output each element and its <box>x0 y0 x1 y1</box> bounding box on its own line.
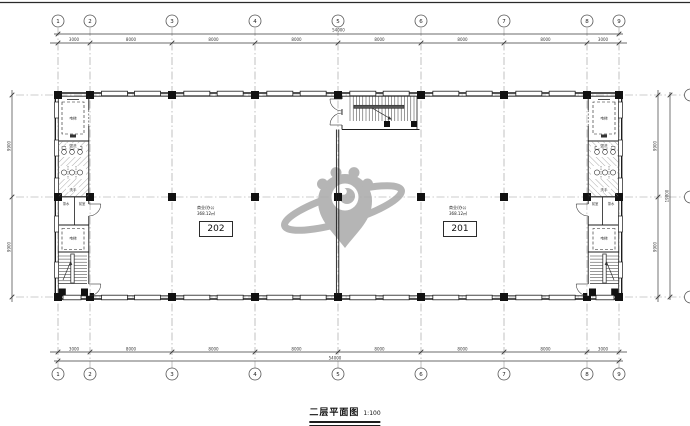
title-underline-thick <box>309 421 380 423</box>
window-bottom <box>267 295 293 300</box>
toilet <box>594 170 599 175</box>
stair-rail <box>354 105 404 108</box>
column <box>417 293 425 301</box>
window-left-wall <box>55 178 59 194</box>
column <box>86 91 94 99</box>
column <box>168 91 176 99</box>
window-top <box>217 91 243 96</box>
column <box>251 293 259 301</box>
stair-column <box>611 289 618 296</box>
core-label-elevator-l: 电梯 <box>69 116 77 121</box>
core-label-wash-r: 盥洗 <box>600 143 608 148</box>
room-note-202-line2: 368.12㎡ <box>197 211 215 216</box>
core-label-pantry-r: 茶水 <box>608 201 615 206</box>
window-top <box>267 91 293 96</box>
room-note-201: 商业/办公 368.12㎡ <box>449 205 467 216</box>
room-number-201: 201 <box>443 221 477 237</box>
window-top <box>102 91 128 96</box>
stair-column <box>589 289 596 296</box>
window-bottom <box>466 295 492 300</box>
toilet <box>602 170 607 175</box>
grid-bubble-label: 8 <box>585 372 589 378</box>
column <box>500 293 508 301</box>
grid-bubble-label: 9 <box>617 372 621 378</box>
dim-label-top-seg: 8000 <box>540 37 551 42</box>
column <box>168 293 176 301</box>
floor-plan-sheet: 5400030008000800080008000800080003000300… <box>0 0 690 426</box>
core-label-pantry-l: 茶水 <box>63 201 70 206</box>
dim-label-left-0: 9900 <box>6 140 11 151</box>
basin <box>611 150 616 155</box>
elevator-counterweight <box>601 135 607 138</box>
grid-bubble-label: 8 <box>585 19 589 25</box>
dim-label-right-1: 9900 <box>652 241 657 252</box>
basin-back <box>611 147 615 150</box>
grid-bubble-label: 6 <box>419 372 423 378</box>
window-bottom-endbay <box>596 295 614 300</box>
drawing-scale: 1:100 <box>363 410 380 417</box>
dim-label-bottom-seg: 3000 <box>69 346 80 351</box>
dim-label-top-overall: 54000 <box>332 28 345 33</box>
window-bottom <box>217 295 243 300</box>
title-underline-thin <box>309 425 380 426</box>
dim-label-right-overall: 19800 <box>664 189 669 202</box>
stair-rail <box>603 254 606 283</box>
window-left-wall <box>55 262 59 278</box>
core-label-lobby-r: 前室 <box>592 201 599 206</box>
column <box>54 91 62 99</box>
basin <box>603 150 608 155</box>
stair-column <box>384 121 390 127</box>
window-top <box>300 91 326 96</box>
window-right-wall <box>618 178 622 194</box>
dim-label-left-1: 9900 <box>6 241 11 252</box>
watermark-gear-tooth <box>362 179 373 190</box>
dim-label-bottom-seg: 8000 <box>291 346 302 351</box>
floor-plan-drawing: 5400030008000800080008000800080003000300… <box>0 0 690 426</box>
window-top <box>433 91 459 96</box>
watermark-gear-tooth <box>349 167 360 178</box>
window-top <box>135 91 161 96</box>
window-bottom <box>350 295 376 300</box>
drawing-title-block: 二层平面图1:100 <box>309 400 380 426</box>
dim-label-top-seg: 8000 <box>374 37 385 42</box>
window-top <box>350 91 376 96</box>
grid-bubble-label: 9 <box>617 19 621 25</box>
window-right-wall <box>618 262 622 278</box>
column <box>251 91 259 99</box>
dim-label-top-seg: 8000 <box>457 37 468 42</box>
grid-bubble-label: 7 <box>502 372 506 378</box>
room-number-202: 202 <box>199 221 233 237</box>
column <box>334 193 342 201</box>
window-bottom <box>300 295 326 300</box>
core-label-elevator-r: 电梯 <box>600 116 608 121</box>
window-bottom <box>184 295 210 300</box>
room-note-201-line1: 商业/办公 <box>449 205 466 210</box>
room-note-202-line1: 商业/办公 <box>197 205 214 210</box>
stair-column <box>411 121 417 127</box>
dim-label-top-seg: 3000 <box>598 37 609 42</box>
basin <box>62 150 67 155</box>
window-bottom <box>516 295 542 300</box>
column <box>615 91 623 99</box>
dim-label-top-seg: 8000 <box>291 37 302 42</box>
grid-bubble-label: 4 <box>253 19 257 25</box>
window-left-wall <box>55 216 59 232</box>
window-top <box>383 91 409 96</box>
window-right-wall <box>618 102 622 118</box>
window-right-wall <box>618 140 622 156</box>
window-bottom-endbay <box>63 295 81 300</box>
window-bottom <box>102 295 128 300</box>
basin <box>595 150 600 155</box>
window-bottom <box>135 295 161 300</box>
window-right-wall <box>618 216 622 232</box>
elevator-counterweight <box>70 135 76 138</box>
column <box>417 193 425 201</box>
window-bottom <box>433 295 459 300</box>
window-left-wall <box>55 140 59 156</box>
column <box>251 193 259 201</box>
basin-back <box>62 147 66 150</box>
grid-bubble-label: 2 <box>88 372 92 378</box>
dim-label-bottom-seg: 3000 <box>598 346 609 351</box>
room-note-202: 商业/办公 368.12㎡ <box>197 205 215 216</box>
toilet <box>77 170 82 175</box>
dim-label-top-seg: 3000 <box>69 37 80 42</box>
grid-bubble-label: 5 <box>336 372 340 378</box>
window-top <box>184 91 210 96</box>
grid-bubble-label: 4 <box>253 372 257 378</box>
dim-label-top-seg: 8000 <box>126 37 137 42</box>
dim-label-top-seg: 8000 <box>208 37 219 42</box>
dim-label-bottom-seg: 8000 <box>457 346 468 351</box>
grid-bubble-label: 3 <box>170 19 174 25</box>
column <box>334 91 342 99</box>
column <box>334 293 342 301</box>
stair-rail <box>71 254 74 283</box>
watermark-gear-tooth <box>317 179 328 190</box>
dim-label-right-0: 9900 <box>652 140 657 151</box>
window-top <box>516 91 542 96</box>
core-label-wc-r: 洗手 <box>600 187 608 192</box>
grid-bubble-label: 1 <box>56 19 60 25</box>
dim-label-bottom-seg: 8000 <box>540 346 551 351</box>
core-label-lobby-l: 前室 <box>79 201 86 206</box>
grid-bubble-label: 5 <box>336 19 340 25</box>
basin <box>78 150 83 155</box>
column <box>583 91 591 99</box>
column <box>500 193 508 201</box>
core-label-wc-l: 洗手 <box>69 187 77 192</box>
core-label-elevator2-l: 电梯 <box>69 236 77 241</box>
column <box>417 91 425 99</box>
room-note-201-line2: 368.12㎡ <box>449 211 467 216</box>
stair-column <box>81 289 88 296</box>
grid-bubble-label: 2 <box>88 19 92 25</box>
drawing-title: 二层平面图 <box>309 408 359 418</box>
toilet <box>61 170 66 175</box>
column <box>168 193 176 201</box>
window-top <box>466 91 492 96</box>
toilet <box>69 170 74 175</box>
grid-bubble-label: 1 <box>56 372 60 378</box>
basin <box>70 150 75 155</box>
grid-bubble-label: 6 <box>419 19 423 25</box>
window-bottom <box>549 295 575 300</box>
grid-bubble-label: 3 <box>170 372 174 378</box>
dim-label-bottom-overall: 54000 <box>329 355 342 360</box>
core-label-elevator2-r: 电梯 <box>600 236 608 241</box>
toilet <box>610 170 615 175</box>
dim-label-bottom-seg: 8000 <box>374 346 385 351</box>
stair-column <box>59 289 66 296</box>
window-top <box>549 91 575 96</box>
window-left-wall <box>55 102 59 118</box>
dim-label-bottom-seg: 8000 <box>126 346 137 351</box>
dim-label-bottom-seg: 8000 <box>208 346 219 351</box>
window-bottom <box>383 295 409 300</box>
column <box>500 91 508 99</box>
grid-bubble-label: 7 <box>502 19 506 25</box>
core-label-wash-l: 盥洗 <box>69 143 77 148</box>
